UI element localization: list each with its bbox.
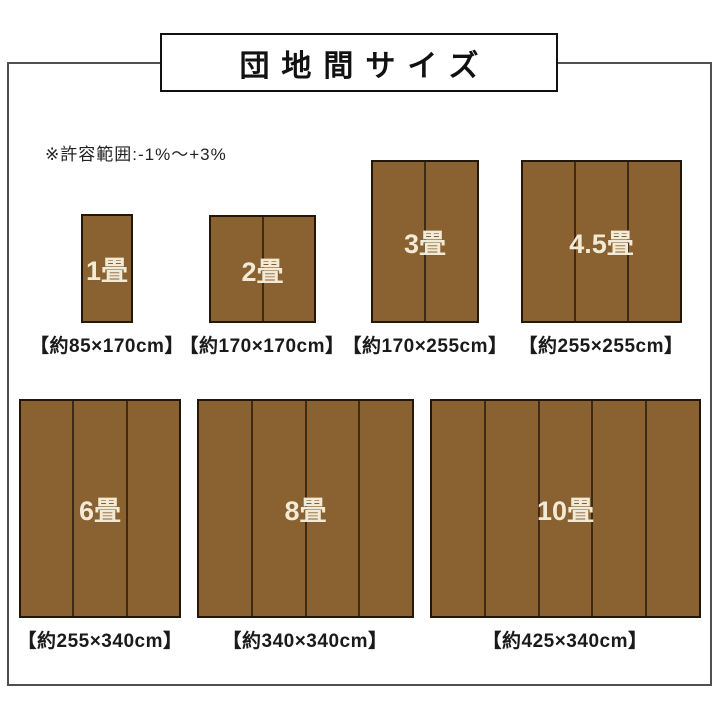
mat-size-label: 10畳 [432,401,699,616]
mat-dimension-caption: 【約255×340cm】 [0,631,210,653]
mat-2jo: 2畳 [209,215,316,323]
mat-8jo: 8畳 [197,399,414,618]
mat-size-label: 1畳 [83,216,131,321]
mat-size-label: 8畳 [199,401,412,616]
mat-size-label: 2畳 [211,217,314,321]
mat-4-5jo: 4.5畳 [521,160,682,323]
title-box: 団地間サイズ [160,33,558,92]
mat-size-label: 4.5畳 [523,162,680,321]
mat-3jo: 3畳 [371,160,479,323]
page-title: 団地間サイズ [227,41,490,85]
mat-6jo: 6畳 [19,399,181,618]
mat-10jo: 10畳 [430,399,701,618]
mat-size-label: 3畳 [373,162,477,321]
mat-dimension-caption: 【約255×255cm】 [491,336,711,358]
mat-1jo: 1畳 [81,214,133,323]
mat-dimension-caption: 【約340×340cm】 [195,631,415,653]
mat-size-label: 6畳 [21,401,179,616]
size-chart-page: 団地間サイズ ※許容範囲:-1%〜+3% 1畳 2畳 3畳 4.5畳 【約85×… [0,0,720,720]
tolerance-note: ※許容範囲:-1%〜+3% [45,140,227,165]
mat-dimension-caption: 【約425×340cm】 [455,631,675,653]
